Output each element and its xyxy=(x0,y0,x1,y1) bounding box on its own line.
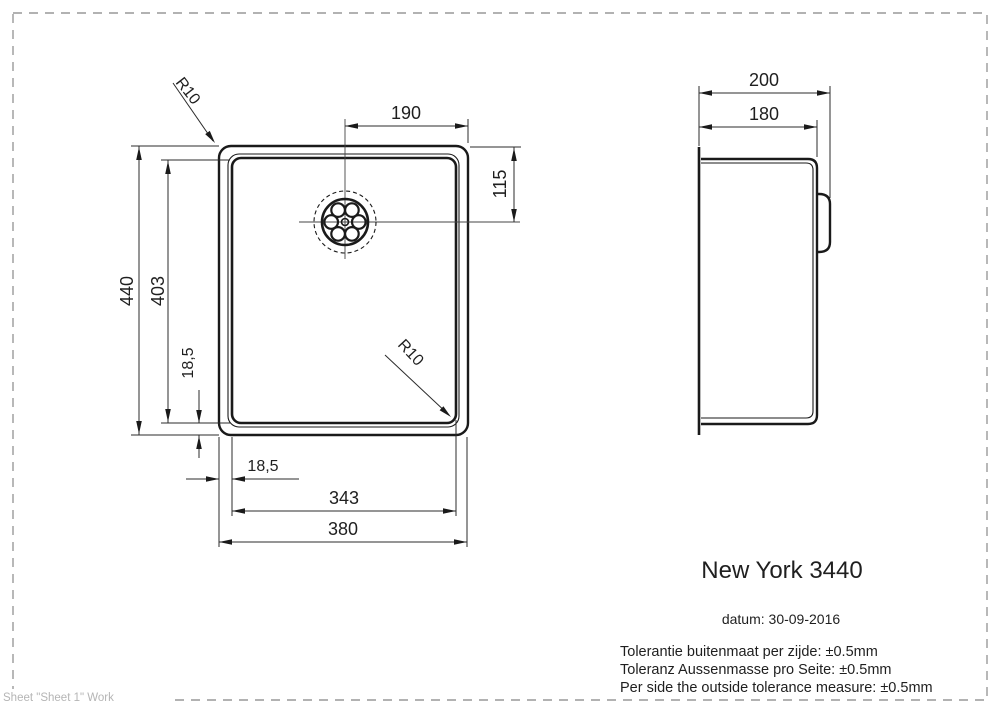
sink-bowl-edge-outer xyxy=(228,154,459,427)
side-body-outline xyxy=(701,159,817,424)
date-line: datum: 30-09-2016 xyxy=(722,611,841,627)
drain-hole xyxy=(331,227,345,241)
dimension-190: 190 xyxy=(345,103,468,143)
radius-label-top: R10 xyxy=(172,74,204,108)
sink-outer-outline xyxy=(219,146,468,435)
radius-label-bottom: R10 xyxy=(394,336,427,369)
dim-label-343: 343 xyxy=(329,488,359,508)
dimension-18-5-vertical: 18,5 xyxy=(180,347,202,458)
product-title: New York 3440 xyxy=(701,557,862,584)
technical-drawing: 190 115 440 403 xyxy=(0,0,1000,713)
dimension-200: 200 xyxy=(699,70,830,198)
dim-label-403: 403 xyxy=(148,276,168,306)
side-body-inner-line xyxy=(701,163,813,418)
dimension-403: 403 xyxy=(148,160,230,423)
tolerance-line-nl: Tolerantie buitenmaat per zijde: ±0.5mm xyxy=(620,644,878,660)
footer: Sheet "Sheet 1" Work xyxy=(0,689,172,706)
dim-label-440: 440 xyxy=(117,276,137,306)
dim-label-380: 380 xyxy=(328,519,358,539)
radius-callout-bottom-right: R10 xyxy=(385,336,451,417)
sheet-border xyxy=(13,13,987,700)
dimension-115: 115 xyxy=(470,147,521,222)
top-view: 190 115 440 403 xyxy=(117,74,521,547)
side-view: 200 180 xyxy=(699,70,830,435)
title-block: New York 3440 datum: 30-09-2016 Tolerant… xyxy=(620,557,933,696)
dim-label-200: 200 xyxy=(749,70,779,90)
drain-hole xyxy=(345,227,359,241)
drawing-sheet: 190 115 440 403 xyxy=(0,0,1000,713)
dim-label-18-5-vertical: 18,5 xyxy=(180,347,197,378)
radius-callout-top-left: R10 xyxy=(172,74,215,143)
drain-icon xyxy=(299,119,520,259)
dim-label-115: 115 xyxy=(490,170,510,199)
dim-label-18-5-horizontal: 18,5 xyxy=(247,458,278,475)
sheet-label: Sheet "Sheet 1" Work xyxy=(3,692,114,704)
tolerance-line-en: Per side the outside tolerance measure: … xyxy=(620,680,933,696)
side-drain-bump xyxy=(818,194,830,252)
dim-label-180: 180 xyxy=(749,104,779,124)
dim-label-190: 190 xyxy=(391,103,421,123)
tolerance-line-de: Toleranz Aussenmasse pro Seite: ±0.5mm xyxy=(620,662,892,678)
dimension-18-5-horizontal: 18,5 xyxy=(186,437,299,547)
dimension-180: 180 xyxy=(699,104,817,157)
drain-hole xyxy=(345,203,359,217)
